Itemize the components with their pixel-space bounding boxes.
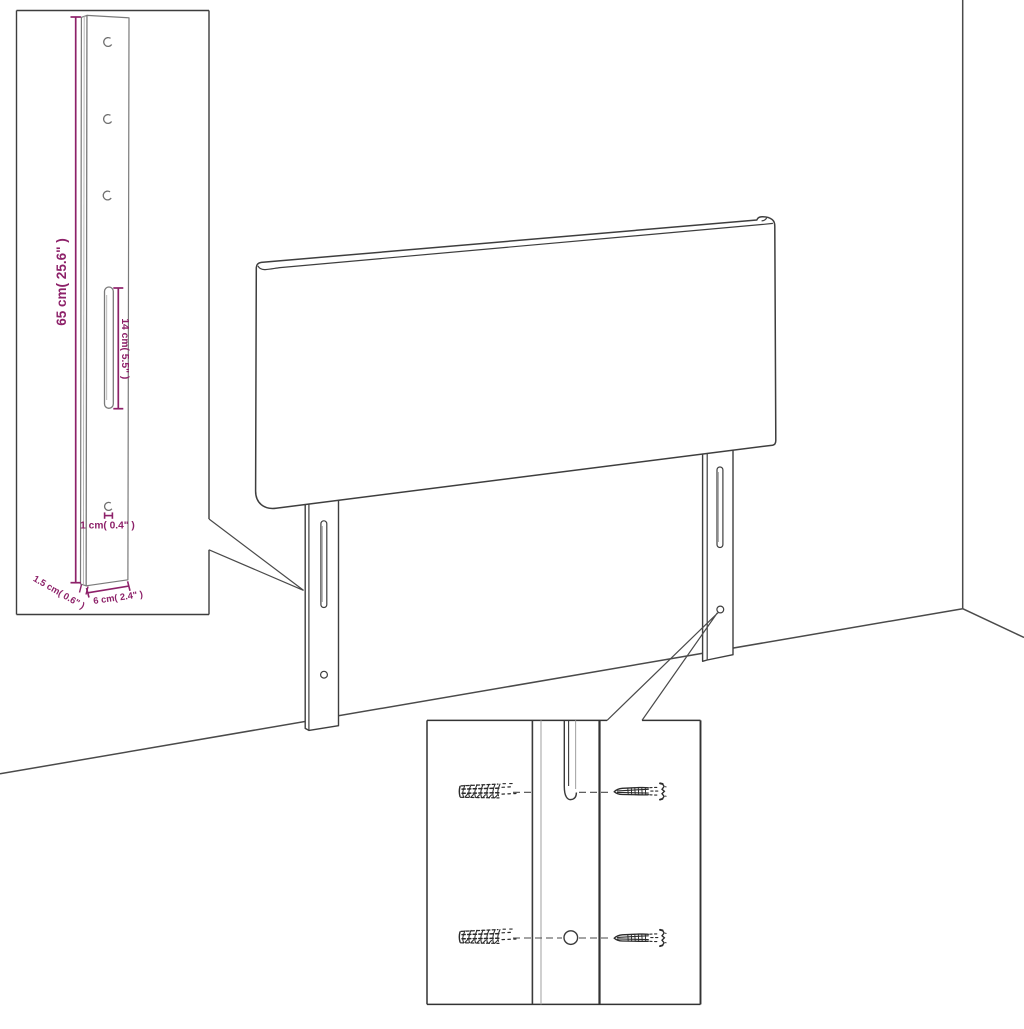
svg-text:14 cm( 5.5" ): 14 cm( 5.5" ) (119, 318, 130, 379)
svg-text:1 cm( 0.4" ): 1 cm( 0.4" ) (80, 521, 135, 532)
svg-text:65 cm( 25.6" ): 65 cm( 25.6" ) (54, 238, 69, 325)
